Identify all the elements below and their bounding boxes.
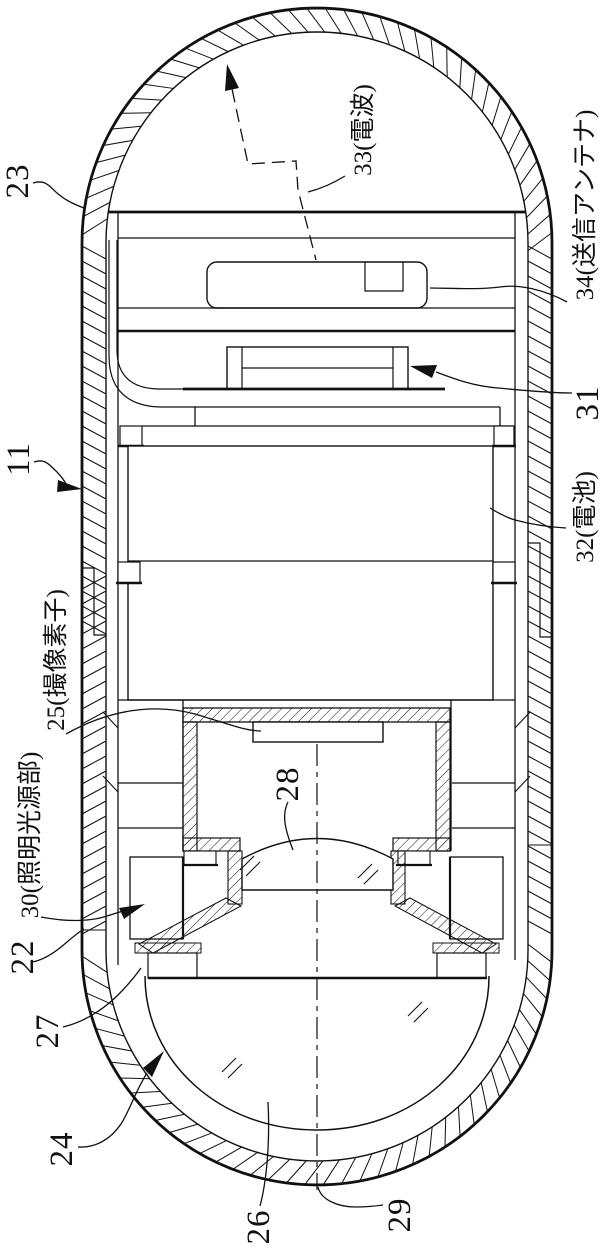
figure-canvas: 23 33(電波) 34(送信アンテナ) 11 31 32(電池) 25(撮像素… — [0, 0, 601, 1251]
sensor-housing-top — [183, 708, 450, 722]
battery-section — [116, 446, 517, 700]
label-33: 33(電波) — [349, 84, 377, 176]
label-25: 25(撮像素子) — [42, 589, 70, 731]
leader-24 — [78, 1073, 147, 1147]
leader-29 — [318, 1187, 383, 1207]
support-plate — [142, 407, 513, 426]
battery-contact-left — [118, 562, 140, 583]
sensor-housing-wall-right — [436, 722, 450, 851]
label-30: 30(照明光源部) — [16, 752, 44, 919]
label-11: 11 — [1, 442, 37, 476]
led-die-left — [184, 851, 216, 865]
flex-cable-outer — [117, 240, 184, 389]
window-rim-right — [433, 943, 499, 953]
label-24: 24 — [44, 1132, 80, 1167]
plate-foot-right — [494, 426, 514, 446]
radio-wave-arrow — [225, 64, 316, 260]
label-29: 29 — [382, 1198, 418, 1233]
leader-23 — [33, 182, 84, 208]
label-34: 34(送信アンテナ) — [571, 110, 599, 301]
patent-figure-capsule-endoscope: 23 33(電波) 34(送信アンテナ) 11 31 32(電池) 25(撮像素… — [0, 0, 601, 1251]
lens-flange-left — [228, 851, 242, 904]
plate-foot-left — [120, 426, 142, 446]
battery — [128, 446, 493, 700]
flex-cable-inner — [109, 240, 196, 407]
label-22: 22 — [5, 940, 41, 975]
leader-27 — [63, 968, 141, 1027]
label-28: 28 — [270, 767, 306, 802]
label-27: 27 — [30, 1014, 66, 1049]
leader-11 — [34, 461, 66, 484]
arrowhead-11-icon — [57, 480, 82, 492]
rim-block-left — [148, 953, 197, 978]
rim-block-right — [437, 953, 486, 978]
leader-34 — [430, 286, 567, 302]
transmit-antenna-block — [207, 262, 427, 308]
radio-wave-dashes — [228, 70, 316, 260]
arrowhead-31-icon — [410, 365, 437, 378]
label-32: 32(電池) — [571, 471, 599, 563]
image-sensor — [253, 722, 383, 742]
label-26: 26 — [241, 1210, 277, 1245]
sensor-housing-wall-left — [183, 722, 197, 851]
housing-foot-left — [183, 838, 240, 851]
label-23: 23 — [0, 164, 36, 199]
battery-contact-right — [493, 562, 515, 583]
label-31: 31 — [570, 386, 601, 421]
antenna-section — [108, 212, 526, 446]
window-rim-left — [135, 943, 201, 953]
housing-foot-right — [393, 838, 450, 851]
leader-33 — [308, 176, 345, 192]
radio-wave-arrowhead-icon — [225, 64, 239, 91]
